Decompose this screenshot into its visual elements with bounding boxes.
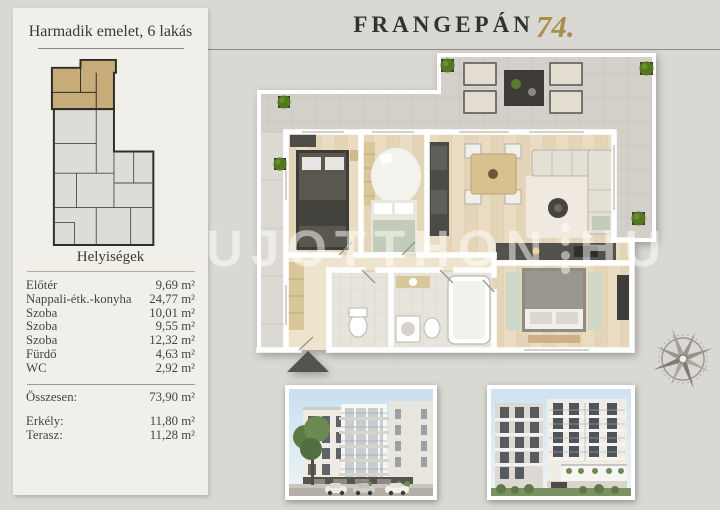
total-area: 11,80 m²	[150, 415, 195, 429]
divider	[27, 271, 195, 272]
divider	[27, 384, 195, 385]
room-area: 10,01 m²	[149, 307, 195, 321]
total-name: Terasz:	[26, 429, 63, 443]
room-row: Szoba 10,01 m²	[26, 307, 195, 321]
divider	[38, 48, 184, 49]
info-panel: Harmadik emelet, 6 lakás	[13, 8, 208, 495]
room-area: 12,32 m²	[149, 334, 195, 348]
room-name: Szoba	[26, 334, 57, 348]
brochure-page: FRANGEPÁN 74. Harmadik emelet, 6 lakás	[0, 0, 720, 510]
room-row: Nappali-étk.-konyha 24,77 m²	[26, 293, 195, 307]
room-area: 9,69 m²	[156, 279, 195, 293]
hallway-furniture	[288, 262, 304, 330]
room-area: 9,55 m²	[156, 320, 195, 334]
total-row: Összesen: 73,90 m²	[26, 391, 195, 405]
building-photo-street	[285, 385, 437, 500]
bedroom-a-furniture	[290, 134, 359, 250]
room-name: WC	[26, 362, 47, 376]
room-name: Nappali-étk.-konyha	[26, 293, 132, 307]
room-row: Szoba 9,55 m²	[26, 320, 195, 334]
total-name: Erkély:	[26, 415, 64, 429]
total-row: Erkély: 11,80 m²	[26, 415, 195, 429]
floor-locator-plan	[36, 55, 186, 247]
entrance-arrow	[287, 351, 329, 372]
brand-title: FRANGEPÁN	[353, 12, 533, 38]
room-name: Szoba	[26, 320, 57, 334]
room-name: Előtér	[26, 279, 57, 293]
floorplan-3d-render	[244, 50, 660, 376]
rooms-section-title: Helyiségek	[13, 249, 208, 266]
room-area: 2,92 m²	[156, 362, 195, 376]
room-area: 24,77 m²	[149, 293, 195, 307]
total-name: Összesen:	[26, 391, 77, 405]
total-area: 11,28 m²	[150, 429, 195, 443]
brand-number: 74.	[536, 9, 575, 45]
room-row: Fürdő 4,63 m²	[26, 348, 195, 362]
total-row: Terasz: 11,28 m²	[26, 429, 195, 443]
room-row: WC 2,92 m²	[26, 362, 195, 376]
room-row: Előtér 9,69 m²	[26, 279, 195, 293]
compass-rose-icon	[648, 324, 718, 394]
room-area: 4,63 m²	[156, 348, 195, 362]
building-photo-courtyard	[487, 385, 635, 500]
floor-title: Harmadik emelet, 6 lakás	[13, 23, 208, 41]
page-header: FRANGEPÁN 74.	[208, 0, 720, 50]
room-table: Előtér 9,69 m² Nappali-étk.-konyha 24,77…	[13, 279, 208, 443]
room-name: Fürdő	[26, 348, 57, 362]
room-row: Szoba 12,32 m²	[26, 334, 195, 348]
total-area: 73,90 m²	[149, 391, 195, 405]
room-name: Szoba	[26, 307, 57, 321]
